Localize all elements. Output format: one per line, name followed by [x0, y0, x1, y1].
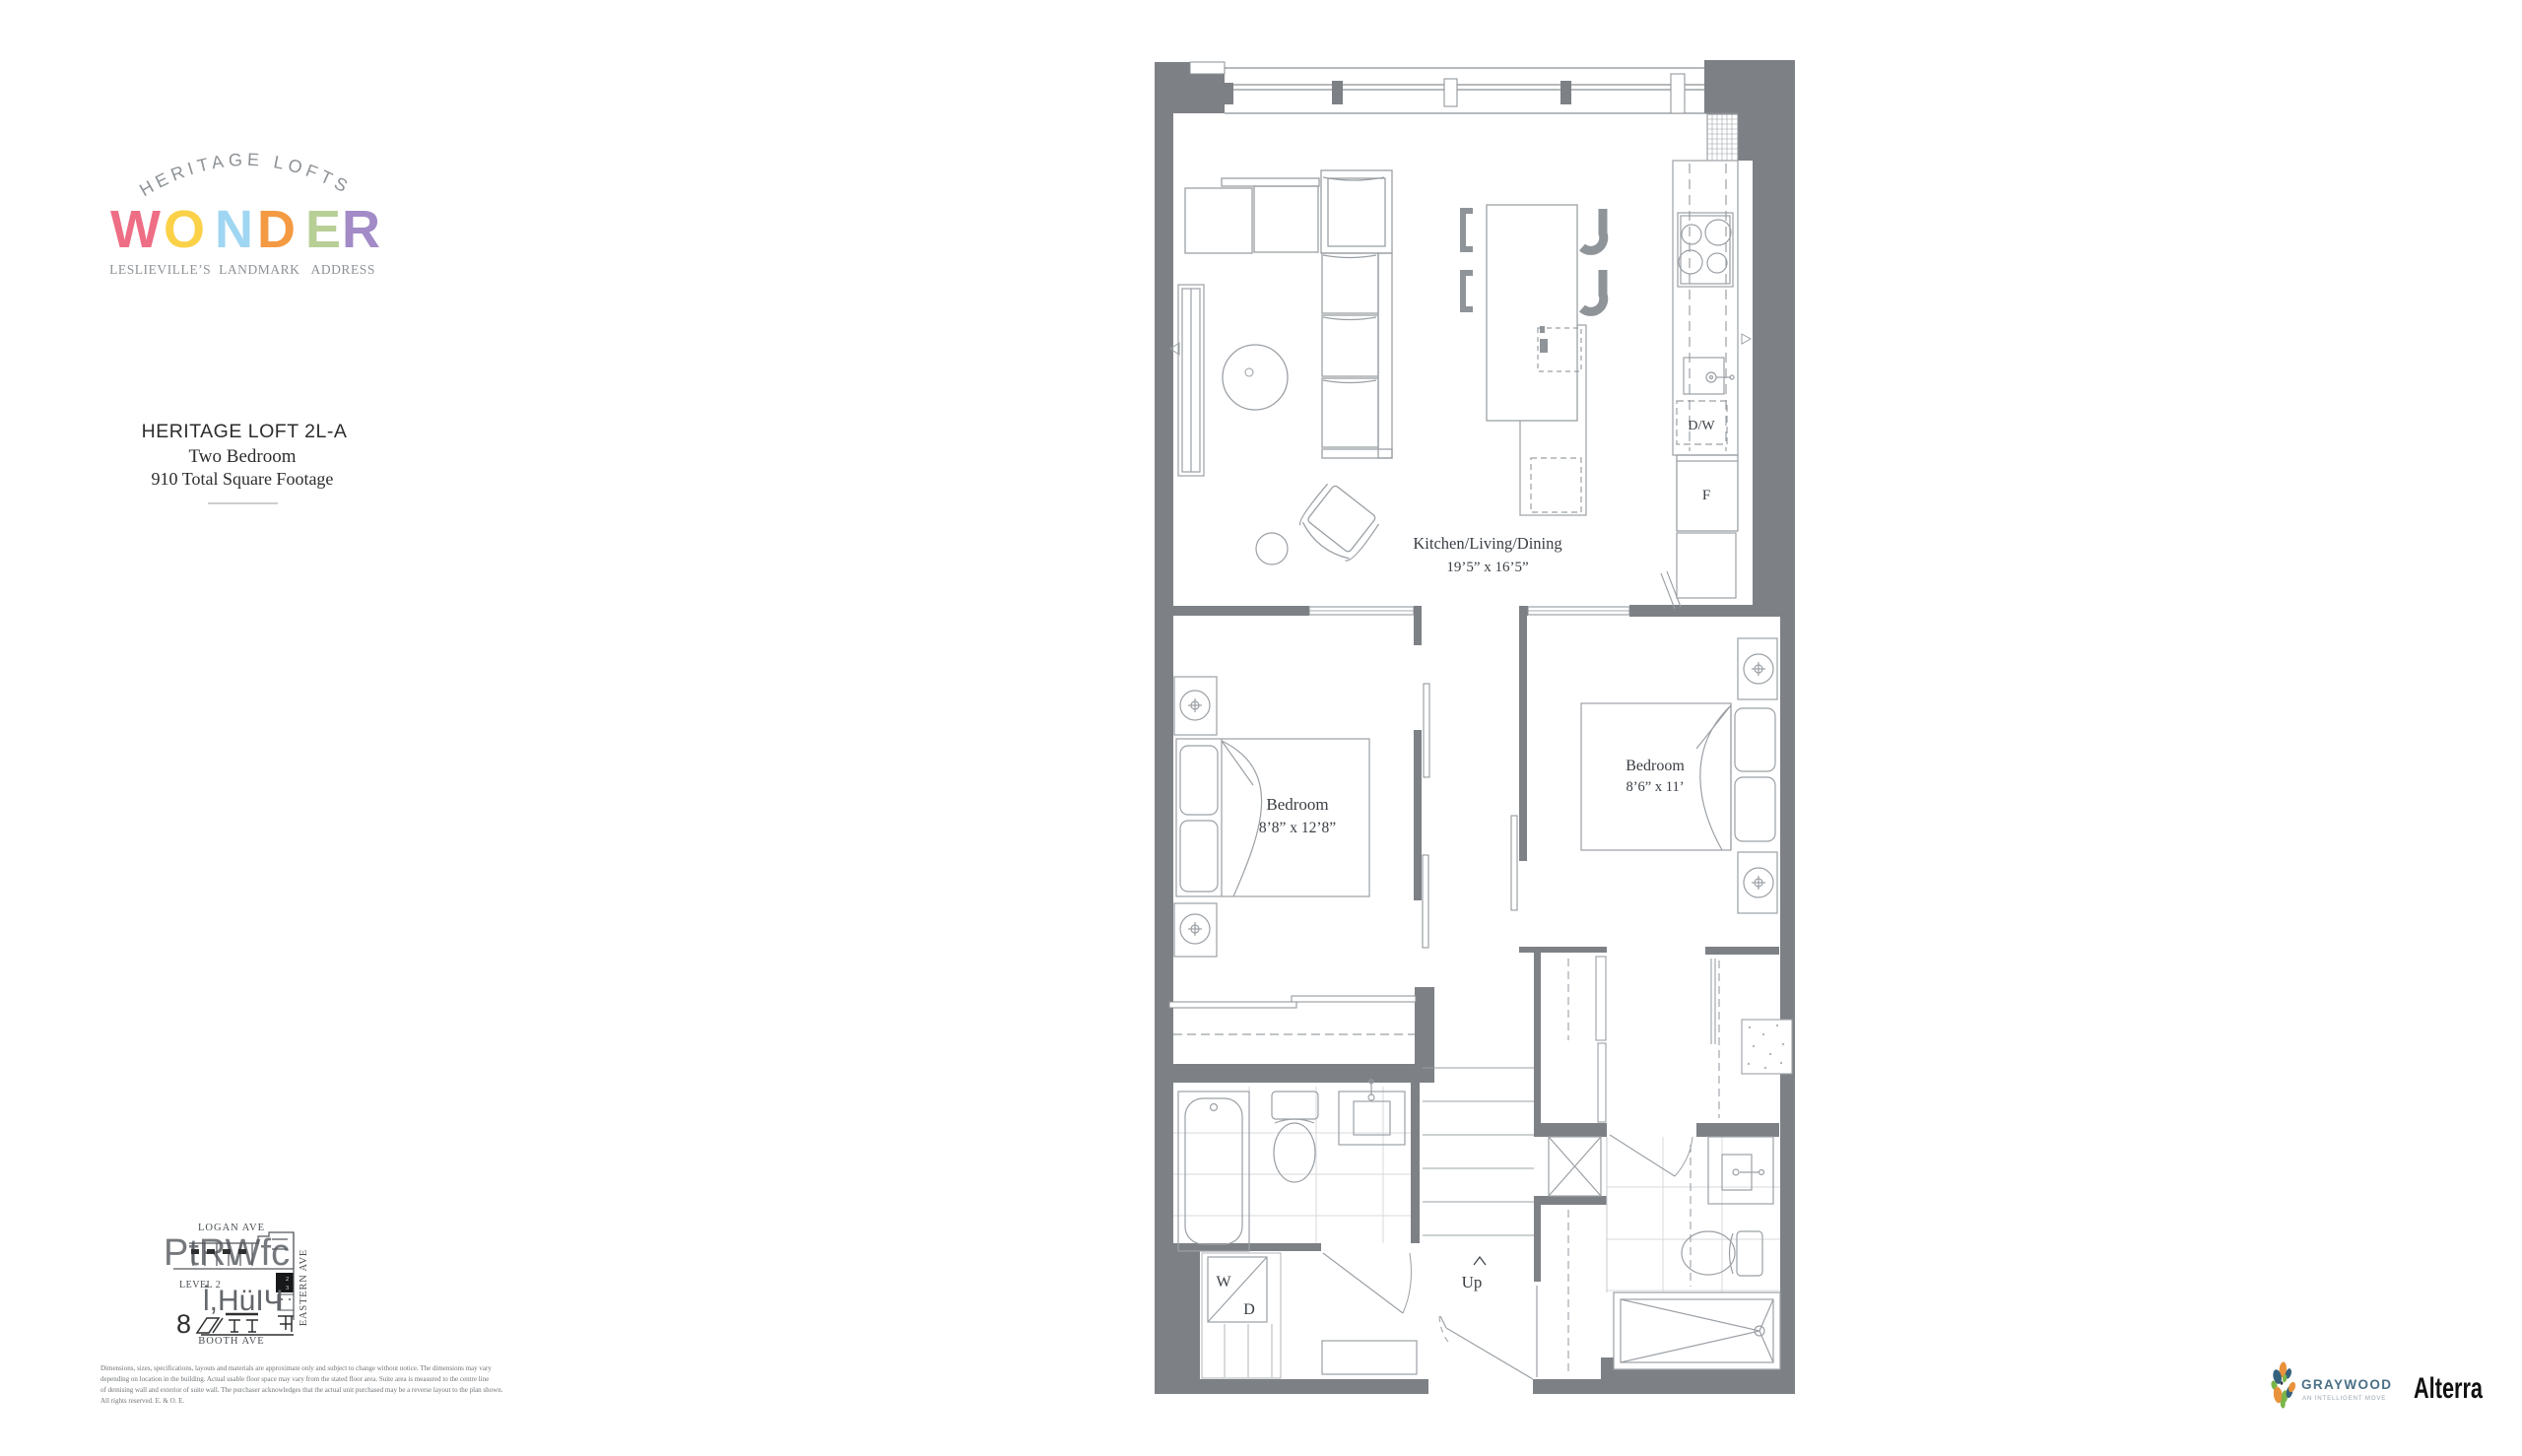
svg-text:Alterra: Alterra — [2414, 1372, 2483, 1405]
svg-text:D: D — [1243, 1301, 1255, 1318]
svg-text:R: R — [342, 200, 380, 259]
svg-text:Kitchen/Living/Dining: Kitchen/Living/Dining — [1413, 534, 1561, 553]
svg-text:Bedroom: Bedroom — [1266, 795, 1328, 814]
svg-text:O: O — [164, 200, 205, 259]
svg-text:910 Total Square Footage: 910 Total Square Footage — [152, 469, 334, 489]
svg-text:AN INTELLIGENT MOVE: AN INTELLIGENT MOVE — [2302, 1395, 2386, 1402]
svg-text:19’5” x 16’5”: 19’5” x 16’5” — [1446, 560, 1528, 575]
svg-text:N: N — [215, 200, 253, 259]
svg-text:F: F — [1702, 488, 1710, 503]
svg-text:LESLIEVILLE’S LANDMARK ADDR: LESLIEVILLE’S LANDMARK ADDRESS — [109, 262, 375, 277]
svg-text:GRAYWOOD: GRAYWOOD — [2301, 1377, 2392, 1392]
svg-text:8: 8 — [176, 1309, 191, 1339]
svg-text:Dimensions, sizes, specificati: Dimensions, sizes, specifications, layou… — [100, 1364, 492, 1372]
svg-text:Two Bedroom: Two Bedroom — [189, 446, 297, 467]
svg-text:D: D — [257, 200, 296, 259]
svg-text:Bedroom: Bedroom — [1626, 758, 1685, 774]
svg-text:HERITAGE LOFT 2L-A: HERITAGE LOFT 2L-A — [142, 421, 348, 442]
svg-text:l̇,HüIЧ: l̇,HüIЧ — [203, 1285, 284, 1317]
svg-text:EASTERN AVE: EASTERN AVE — [299, 1249, 309, 1326]
svg-text:D/W: D/W — [1688, 419, 1715, 433]
svg-text:BOOTH AVE: BOOTH AVE — [198, 1336, 264, 1347]
svg-text:3: 3 — [286, 1286, 289, 1291]
svg-text:8’6” x 11’: 8’6” x 11’ — [1626, 779, 1684, 795]
svg-text:W: W — [1216, 1274, 1231, 1291]
svg-text:depending on location in the b: depending on location in the building. A… — [100, 1375, 489, 1383]
svg-text:All rights reserved. E. & O. E: All rights reserved. E. & O. E. — [100, 1397, 184, 1405]
svg-text:8’8” x 12’8”: 8’8” x 12’8” — [1259, 820, 1336, 836]
svg-text:W: W — [110, 200, 161, 259]
svg-text:2: 2 — [286, 1277, 289, 1283]
svg-text:of demising wall and exterior: of demising wall and exterior of suite w… — [100, 1386, 503, 1394]
svg-text:Up: Up — [1462, 1273, 1483, 1291]
svg-text:E: E — [305, 200, 341, 259]
